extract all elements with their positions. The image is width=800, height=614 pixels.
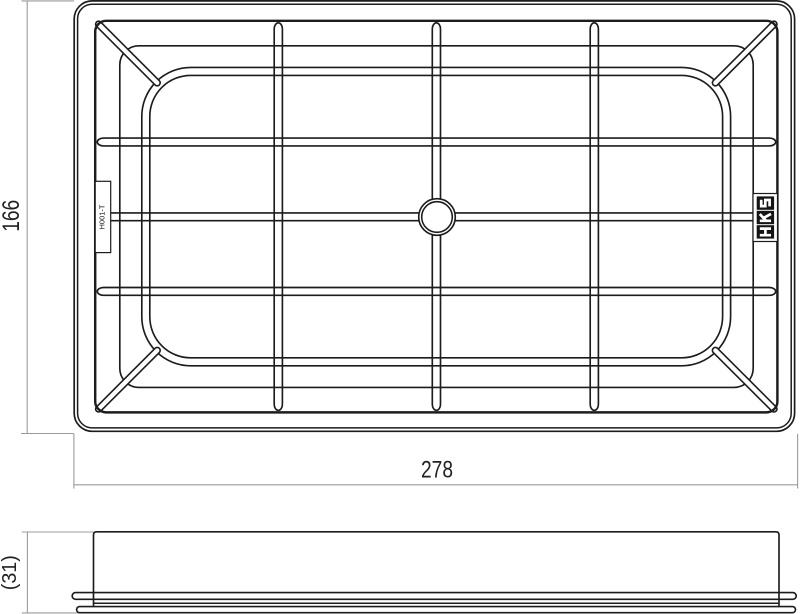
svg-text:(31): (31) bbox=[0, 555, 21, 590]
svg-text:H001-T: H001-T bbox=[97, 204, 106, 229]
svg-text:278: 278 bbox=[421, 456, 453, 483]
svg-text:166: 166 bbox=[0, 200, 25, 232]
